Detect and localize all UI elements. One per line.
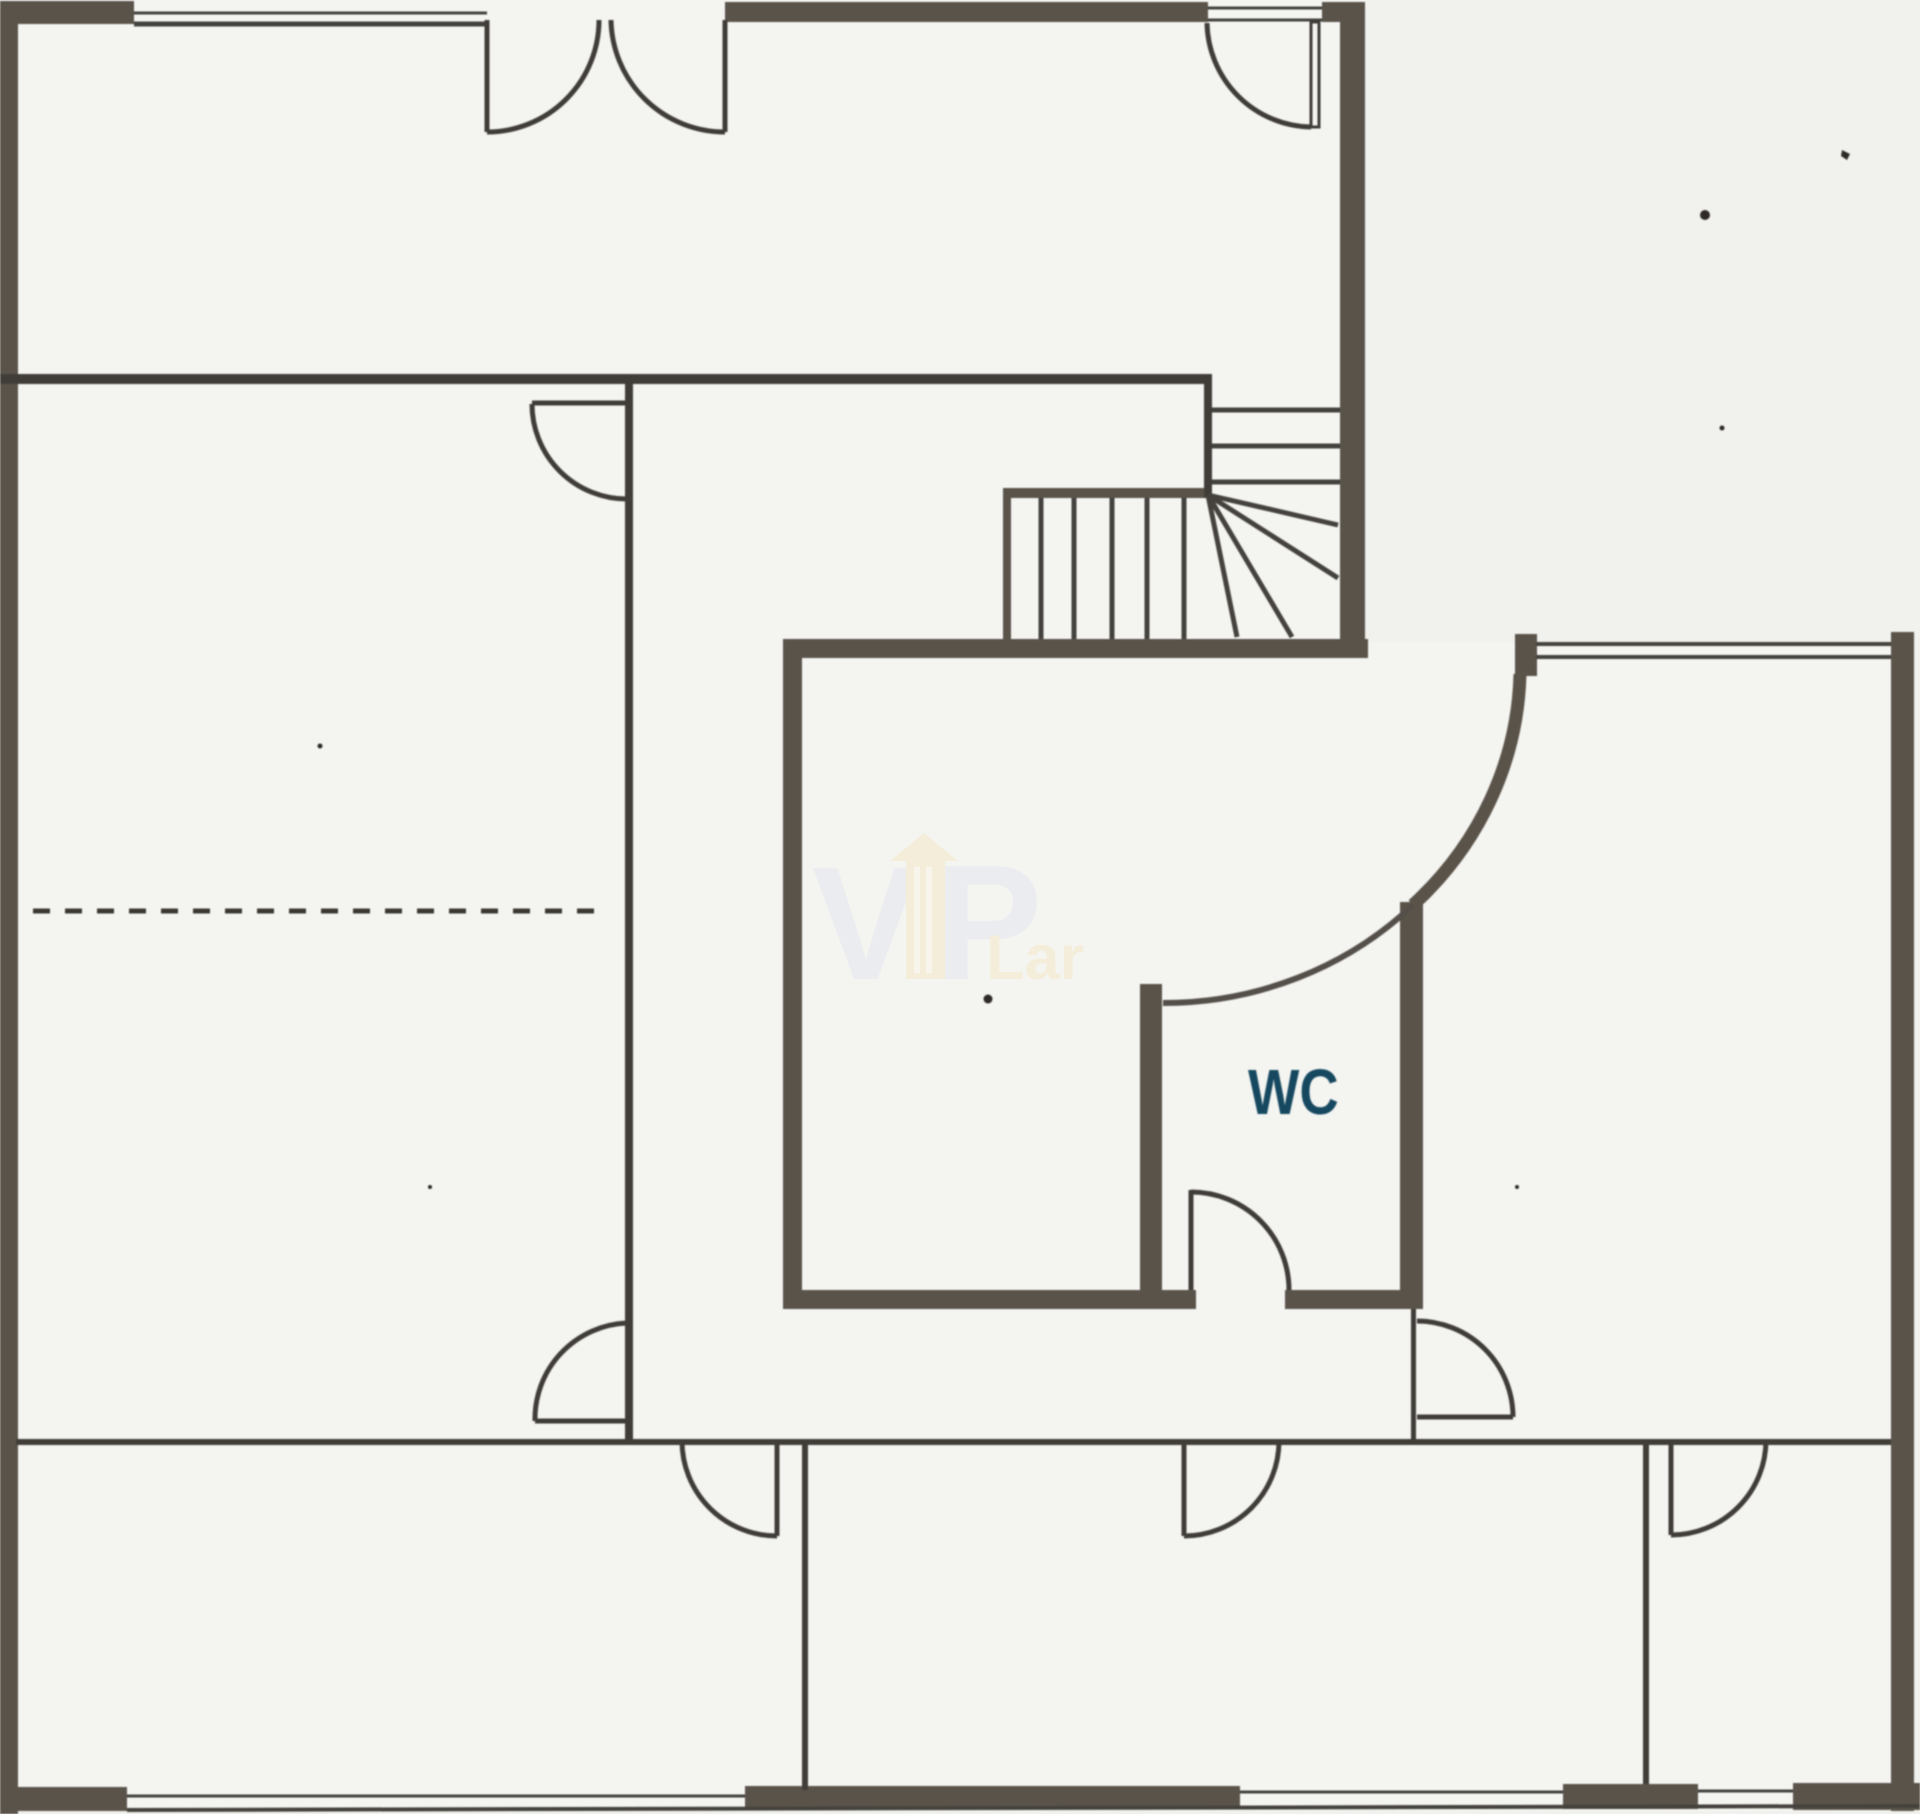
svg-text:Lar: Lar [986,923,1084,993]
svg-text:WC: WC [1248,1056,1339,1128]
